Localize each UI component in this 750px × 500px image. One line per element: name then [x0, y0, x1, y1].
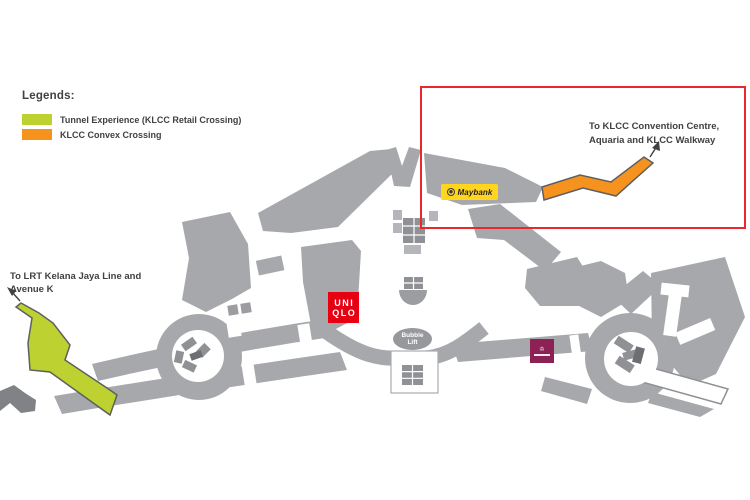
escalator-icon-lift-shaft	[402, 365, 423, 385]
uniqlo-label-line2: QLO	[331, 308, 357, 318]
legend-title: Legends:	[22, 90, 75, 102]
tunnel-experience-swatch	[22, 114, 52, 125]
diagonal-band	[258, 149, 399, 233]
v-block	[386, 147, 421, 187]
stage-fan	[399, 290, 427, 305]
lrt-direction-label: To LRT Kelana Jaya Line and Avenue K	[10, 270, 170, 296]
west-block	[182, 212, 251, 312]
maybank-tiger-icon	[447, 188, 455, 196]
convex-crossing-swatch	[22, 129, 52, 140]
convention-centre-direction-label: To KLCC Convention Centre, Aquaria and K…	[589, 120, 750, 147]
escalator-icon-band	[227, 302, 251, 315]
legend-item-tunnel-experience: Tunnel Experience (KLCC Retail Crossing)	[22, 114, 241, 125]
crown-icon: ♔	[539, 347, 544, 353]
floor-map-canvas	[0, 0, 750, 500]
legend-item-label: Tunnel Experience (KLCC Retail Crossing)	[60, 115, 241, 125]
convex-crossing-path	[542, 157, 653, 200]
maybank-store-badge: Maybank	[441, 184, 498, 200]
z-block	[468, 204, 561, 271]
legend-item-label: KLCC Convex Crossing	[60, 130, 162, 140]
bubble-lift-line1: Bubble	[401, 332, 423, 339]
escalator-icon-top	[393, 210, 438, 254]
bubble-lift-line2: Lift	[407, 339, 417, 346]
bubble-lift-badge: Bubble Lift	[393, 328, 432, 350]
maybank-label: Maybank	[458, 188, 493, 197]
legend: Legends: Tunnel Experience (KLCC Retail …	[22, 90, 75, 102]
uniqlo-store-badge: UNI QLO	[328, 292, 359, 323]
east-block-b	[560, 261, 629, 317]
sw-wedge	[541, 377, 592, 404]
right-rotunda-court	[604, 332, 658, 386]
store-wordmark	[534, 354, 550, 356]
klcc-floor-map: Legends: Tunnel Experience (KLCC Retail …	[0, 0, 750, 500]
legend-item-convex-crossing: KLCC Convex Crossing	[22, 129, 162, 140]
avenue-k-link-shape	[0, 385, 36, 413]
uniqlo-label-line1: UNI	[333, 298, 355, 308]
small-block	[256, 255, 285, 275]
purple-store-badge: ♔	[530, 339, 554, 363]
escalator-icon-centre	[404, 277, 423, 289]
highlight-box	[421, 87, 745, 228]
